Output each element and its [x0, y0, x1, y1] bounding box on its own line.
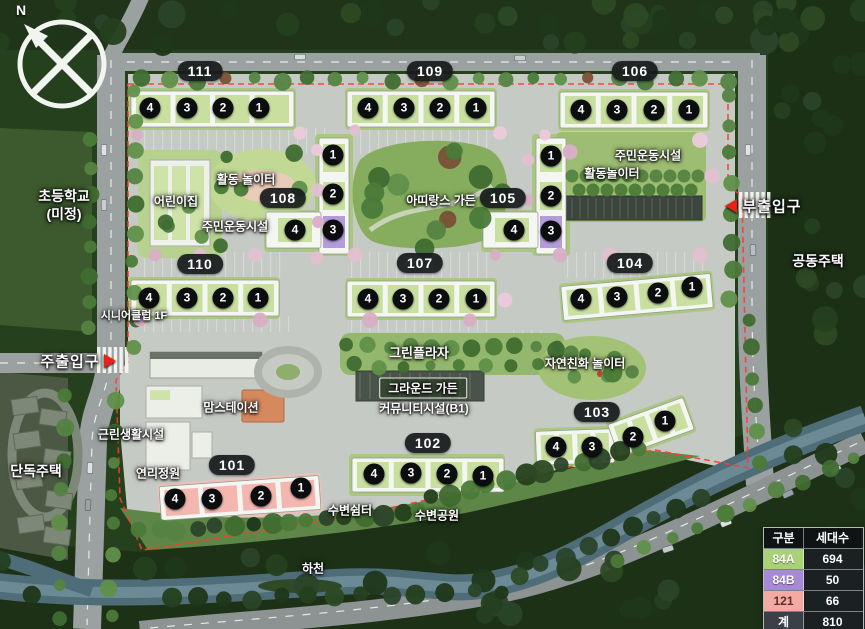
- unit-circle-110-1: 1: [248, 288, 269, 309]
- unit-circle-110-2: 2: [213, 288, 234, 309]
- compass: N: [2, 2, 112, 122]
- building-label-101: 101: [209, 455, 255, 475]
- sub-entrance-label: 부출입구: [742, 196, 801, 217]
- building-label-111: 111: [178, 61, 223, 81]
- neighborhood-facility-label: 근린생활시설: [98, 426, 164, 443]
- senior-club-label: 시니어클럽 1F: [101, 307, 168, 323]
- unit-circle-107-3: 3: [393, 289, 414, 310]
- unit-circle-104-2: 2: [648, 283, 669, 304]
- activity-playground-east-label: 활동놀이터: [584, 165, 639, 182]
- activity-playground-west-label: 활동 놀이터: [217, 171, 276, 188]
- building-label-103: 103: [574, 402, 620, 422]
- attirance-garden-label: 아띠랑스 가든: [406, 192, 476, 209]
- legend-count-84b: 50: [804, 570, 861, 590]
- legend-header-row: 구분 세대수: [764, 528, 863, 548]
- legend-table: 구분 세대수 84A 694 84B 50 121 66 계 810: [763, 527, 864, 629]
- community-facility-label: 커뮤니티시설(B1): [379, 400, 469, 417]
- building-label-110: 110: [177, 254, 223, 274]
- building-label-102: 102: [405, 433, 451, 453]
- legend-type-84a: 84A: [764, 549, 804, 569]
- legend-count-84a: 694: [804, 549, 861, 569]
- legend-row-84b: 84B 50: [764, 569, 863, 590]
- legend-row-84a: 84A 694: [764, 548, 863, 569]
- resident-sports-west-label: 주민운동시설: [202, 218, 268, 235]
- school-site-label-line2: (미정): [46, 204, 81, 224]
- unit-circle-102-3: 3: [401, 463, 422, 484]
- unit-circle-103-1: 1: [655, 411, 676, 432]
- sub-entrance-arrow-icon: [725, 199, 737, 213]
- unit-circle-111-3: 3: [177, 98, 198, 119]
- unit-circle-106-2: 2: [644, 100, 665, 121]
- site-plan: N 111 109 106 108 105 110 107 104 103 10…: [0, 0, 865, 629]
- unit-circle-106-1: 1: [679, 100, 700, 121]
- unit-circle-103-4: 4: [546, 437, 567, 458]
- building-label-107: 107: [397, 253, 443, 273]
- unit-circle-105-1: 1: [541, 146, 562, 167]
- building-label-108: 108: [260, 188, 306, 208]
- daycare-label: 어린이집: [154, 193, 198, 210]
- mom-station-label: 맘스테이션: [203, 399, 258, 416]
- unit-circle-101-4: 4: [165, 489, 186, 510]
- unit-circle-102-2: 2: [437, 464, 458, 485]
- waterside-park-label: 수변공원: [415, 507, 459, 524]
- unit-circle-104-4: 4: [571, 289, 592, 310]
- unit-circle-110-4: 4: [139, 288, 160, 309]
- detached-housing-label: 단독주택: [10, 461, 62, 481]
- resident-sports-east-label: 주민운동시설: [615, 147, 681, 164]
- unit-circle-101-3: 3: [202, 489, 223, 510]
- unit-circle-108-1: 1: [323, 145, 344, 166]
- unit-circle-108-3: 3: [323, 220, 344, 241]
- legend-count-121: 66: [804, 591, 861, 611]
- legend-header-count: 세대수: [804, 528, 861, 548]
- main-entrance-arrow-icon: [104, 354, 116, 368]
- compass-north-label: N: [16, 2, 26, 18]
- unit-circle-101-2: 2: [251, 486, 272, 507]
- unit-circle-104-1: 1: [682, 277, 703, 298]
- legend-type-121: 121: [764, 591, 804, 611]
- unit-circle-102-4: 4: [364, 464, 385, 485]
- legend-header-type: 구분: [764, 528, 804, 548]
- unit-circle-104-3: 3: [607, 287, 628, 308]
- nature-playground-label: 자연친화 놀이터: [545, 355, 626, 372]
- apartment-housing-label: 공동주택: [792, 251, 844, 271]
- building-label-106: 106: [612, 61, 658, 81]
- unit-circle-110-3: 3: [177, 288, 198, 309]
- legend-type-total: 계: [764, 612, 804, 629]
- unit-circle-106-4: 4: [571, 100, 592, 121]
- main-entrance-label: 주출입구: [40, 351, 99, 372]
- unit-circle-109-1: 1: [466, 98, 487, 119]
- green-plaza-label: 그린플라자: [389, 343, 449, 362]
- stream-label: 하천: [302, 560, 324, 577]
- unit-circle-109-3: 3: [394, 98, 415, 119]
- unit-circle-102-1: 1: [473, 466, 494, 487]
- ground-garden-label: 그라운드 가든: [379, 378, 467, 399]
- unit-circle-107-4: 4: [358, 289, 379, 310]
- unit-circle-105-4: 4: [504, 220, 525, 241]
- legend-type-84b: 84B: [764, 570, 804, 590]
- waterside-rest-label: 수변쉼터: [328, 502, 372, 519]
- unit-circle-105-3: 3: [541, 221, 562, 242]
- unit-circle-105-2: 2: [541, 186, 562, 207]
- legend-count-total: 810: [804, 612, 861, 629]
- unit-circle-108-2: 2: [323, 184, 344, 205]
- unit-circle-101-1: 1: [291, 478, 312, 499]
- building-label-109: 109: [407, 61, 453, 81]
- unit-circle-106-3: 3: [607, 100, 628, 121]
- unit-circle-109-4: 4: [358, 98, 379, 119]
- legend-row-121: 121 66: [764, 590, 863, 611]
- unit-circle-111-4: 4: [140, 98, 161, 119]
- yeonri-garden-label: 연리정원: [136, 465, 180, 482]
- unit-circle-103-3: 3: [582, 437, 603, 458]
- unit-circle-111-2: 2: [213, 98, 234, 119]
- legend-row-total: 계 810: [764, 611, 863, 629]
- unit-circle-111-1: 1: [249, 98, 270, 119]
- compass-icon: [2, 2, 112, 122]
- school-site-label-line1: 초등학교: [38, 186, 90, 206]
- unit-circle-108-4: 4: [285, 220, 306, 241]
- unit-circle-103-2: 2: [623, 427, 644, 448]
- unit-circle-109-2: 2: [430, 98, 451, 119]
- unit-circle-107-2: 2: [429, 289, 450, 310]
- unit-circle-107-1: 1: [466, 289, 487, 310]
- building-label-104: 104: [607, 253, 653, 273]
- building-label-105: 105: [480, 188, 526, 208]
